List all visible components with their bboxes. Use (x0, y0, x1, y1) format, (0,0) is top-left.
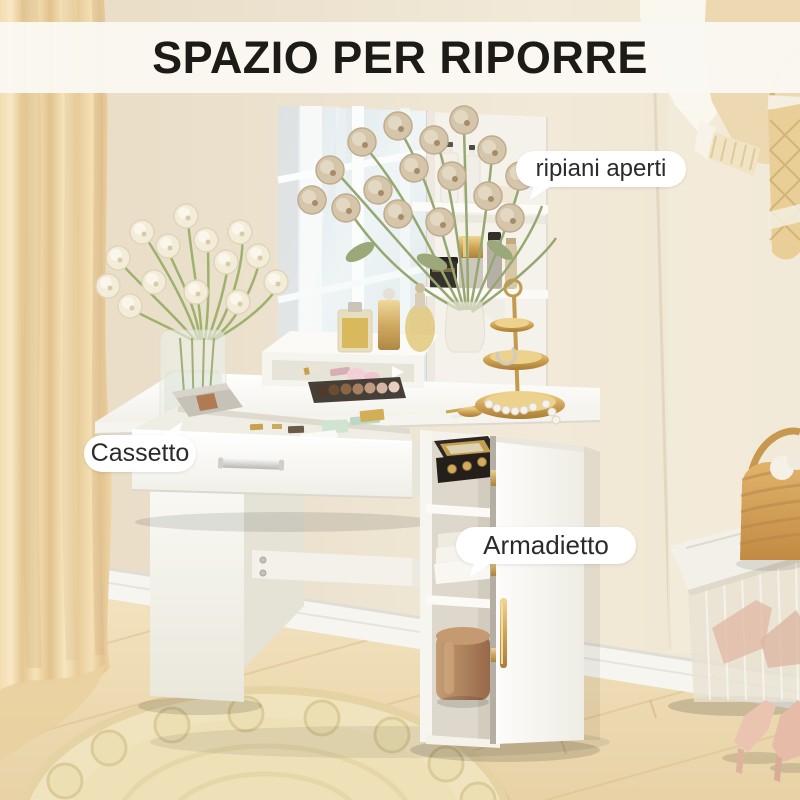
title-banner: SPAZIO PER RIPORRE (0, 22, 800, 93)
callout-pointer (158, 422, 183, 438)
room-scene (0, 0, 800, 800)
door-handle (500, 598, 507, 668)
storage-basket (436, 627, 490, 708)
cabinet-door (490, 436, 600, 744)
page-title: SPAZIO PER RIPORRE (152, 32, 648, 84)
callout-drawer: Cassetto (84, 435, 196, 472)
callout-cabinet-label: Armadietto (483, 530, 609, 561)
product-photo: SPAZIO PER RIPORRE ripiani aperti Casset… (0, 0, 800, 800)
callout-drawer-label: Cassetto (91, 439, 190, 468)
callout-cabinet: Armadietto (456, 527, 636, 564)
callout-open-shelves-label: ripiani aperti (536, 155, 667, 183)
callout-open-shelves: ripiani aperti (516, 151, 686, 187)
curtain (0, 0, 112, 760)
